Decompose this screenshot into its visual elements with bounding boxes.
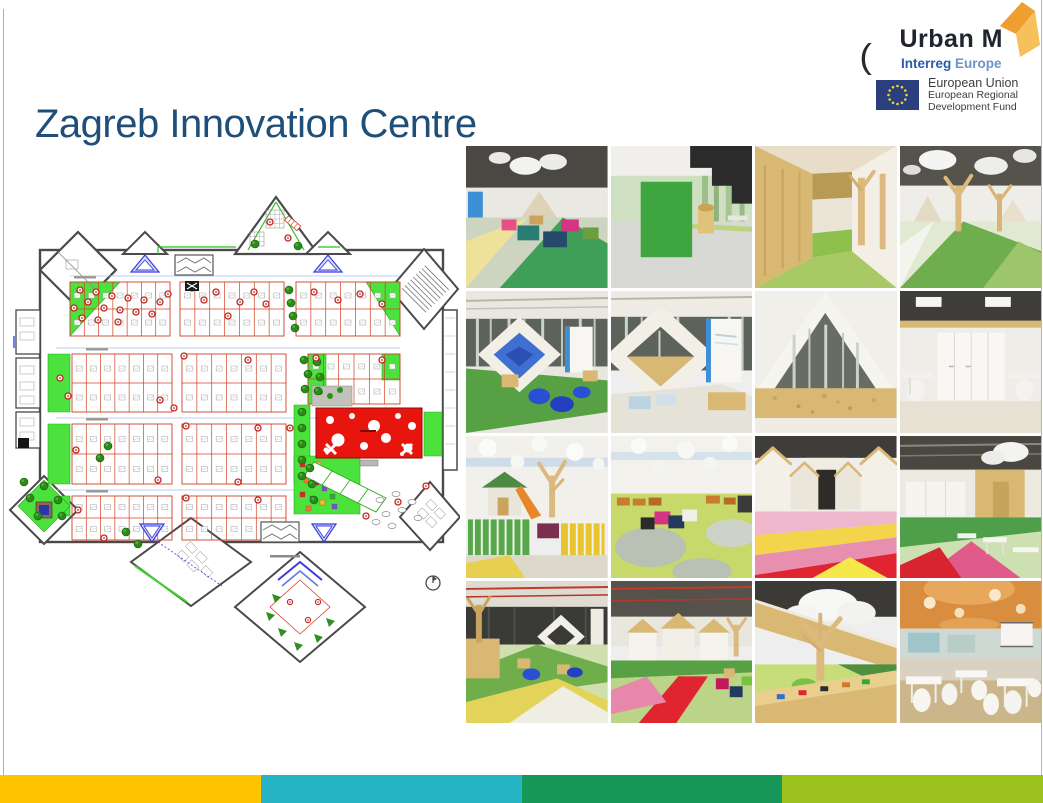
photo-3 — [755, 146, 897, 288]
urban-m-brand-text: Urban M — [900, 27, 1004, 52]
photo-8 — [900, 291, 1042, 433]
photo-11 — [755, 436, 897, 578]
photo-12 — [900, 436, 1042, 578]
partial-logo-mark: ( — [859, 38, 871, 77]
slide-left-edge — [3, 9, 4, 775]
photo-16 — [900, 581, 1042, 723]
interreg-europe-text: Interreg Europe — [900, 57, 1004, 71]
eu-line-1: European Union — [928, 76, 1018, 90]
photo-9 — [466, 436, 608, 578]
europe-text: Europe — [955, 56, 1002, 71]
eu-attribution-text: European Union European Regional Develop… — [928, 76, 1018, 114]
urban-m-arrow-icon — [999, 0, 1041, 58]
footer-color-bar — [0, 775, 1043, 803]
photo-13 — [466, 581, 608, 723]
photo-grid — [466, 146, 1041, 723]
eu-line-2: European Regional — [928, 90, 1018, 102]
footer-segment-yellow — [0, 775, 261, 803]
eu-attribution: European Union European Regional Develop… — [876, 76, 1018, 114]
page-title: Zagreb Innovation Centre — [35, 103, 477, 145]
eu-line-3: Development Fund — [928, 102, 1018, 114]
slide: Zagreb Innovation Centre ( Urban M Inter… — [0, 0, 1043, 803]
floor-plan — [8, 150, 460, 707]
photo-1 — [466, 146, 608, 288]
photo-14 — [611, 581, 753, 723]
photo-15 — [755, 581, 897, 723]
urban-m-logo: Urban M Interreg Europe — [900, 27, 1004, 71]
eu-flag-icon — [876, 80, 919, 110]
photo-7 — [755, 291, 897, 433]
slide-right-edge — [1041, 0, 1042, 803]
photo-10 — [611, 436, 753, 578]
footer-segment-green — [522, 775, 783, 803]
photo-5 — [466, 291, 608, 433]
footer-segment-lime — [782, 775, 1043, 803]
photo-2 — [611, 146, 753, 288]
interreg-text: Interreg — [901, 56, 951, 71]
photo-6 — [611, 291, 753, 433]
footer-segment-teal — [261, 775, 522, 803]
photo-4 — [900, 146, 1042, 288]
